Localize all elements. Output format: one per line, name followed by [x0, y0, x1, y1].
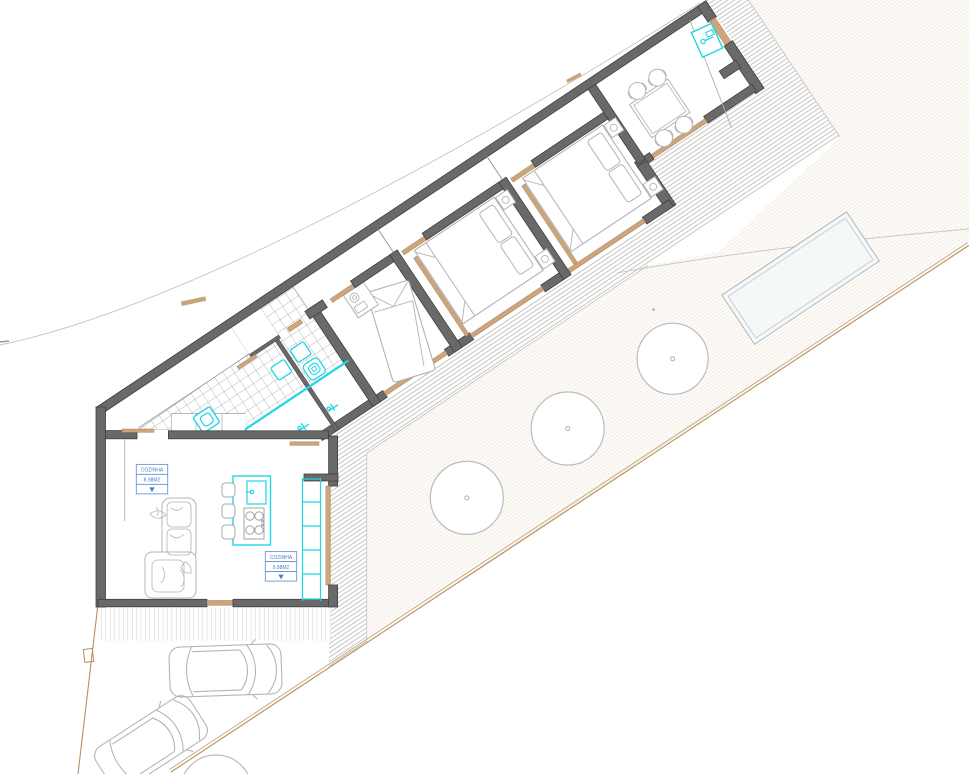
svg-text:COZINHA: COZINHA	[270, 555, 293, 561]
svg-text:8.98M2: 8.98M2	[144, 478, 161, 484]
svg-text:9.88M2: 9.88M2	[273, 565, 290, 571]
svg-text:COZINHA: COZINHA	[141, 468, 164, 474]
